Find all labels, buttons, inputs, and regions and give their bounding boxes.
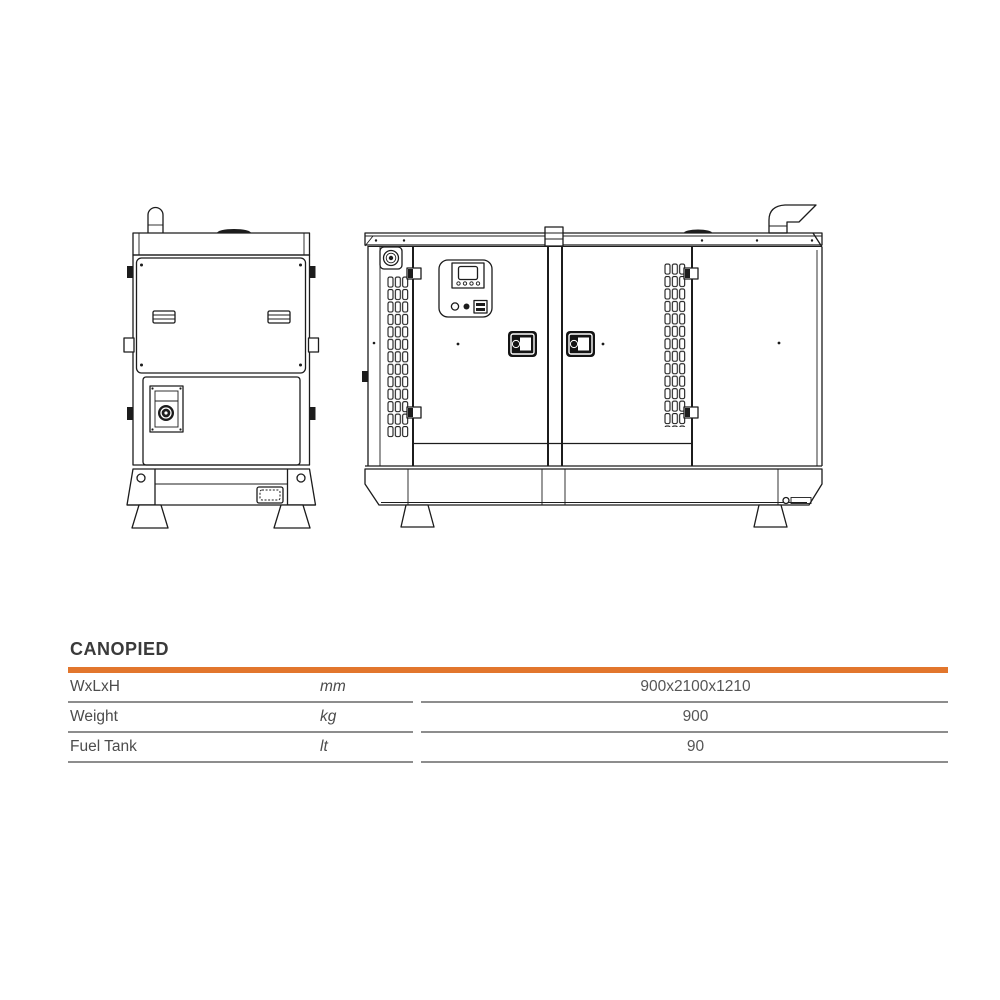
table-row: WxLxH mm 900x2100x1210 xyxy=(68,673,948,703)
table-row: Weight kg 900 xyxy=(68,703,948,733)
side-tab xyxy=(127,407,134,420)
side-tab xyxy=(309,407,316,420)
roof-band xyxy=(365,233,822,247)
generator-front-view-drawing xyxy=(115,195,340,535)
louver-slot-left xyxy=(153,311,175,323)
row-label: Weight xyxy=(68,708,320,726)
emergency-stop-button xyxy=(380,247,402,269)
foot xyxy=(754,505,787,527)
row-unit: mm xyxy=(320,678,346,696)
row-unit: lt xyxy=(320,738,328,756)
lift-bracket xyxy=(309,338,319,352)
table-title: CANOPIED xyxy=(70,640,948,659)
row-value: 90 xyxy=(421,733,948,763)
base-frame xyxy=(127,469,316,505)
exhaust-stub xyxy=(148,208,163,233)
display-screen xyxy=(459,267,478,280)
base-plate xyxy=(257,487,283,503)
door-latch-left xyxy=(508,331,537,357)
lifting-bracket xyxy=(545,227,563,246)
canopy-body xyxy=(133,255,310,465)
foot xyxy=(401,505,434,527)
lower-door xyxy=(143,377,300,465)
panel-button xyxy=(451,303,458,310)
side-tab xyxy=(362,371,368,382)
side-tab xyxy=(127,266,134,278)
row-label: Fuel Tank xyxy=(68,738,320,756)
door-hinges xyxy=(407,268,698,418)
foot xyxy=(132,505,168,528)
vent-grille-right xyxy=(664,263,686,427)
socket-recess xyxy=(150,386,183,432)
row-unit: kg xyxy=(320,708,336,726)
exhaust-pipe xyxy=(769,205,816,233)
vent-grille-left xyxy=(387,276,409,438)
table-row: Fuel Tank lt 90 xyxy=(68,733,948,763)
service-doors xyxy=(413,246,692,466)
control-panel xyxy=(439,260,492,317)
panel-button xyxy=(464,304,470,310)
panel-socket xyxy=(474,301,487,314)
louver-slot-right xyxy=(268,311,290,323)
foot xyxy=(274,505,310,528)
row-label: WxLxH xyxy=(68,678,320,696)
generator-side-view-drawing xyxy=(350,195,830,535)
roof-cap xyxy=(684,230,712,233)
drain-plug xyxy=(783,498,789,504)
side-tab xyxy=(309,266,316,278)
door-latch-right xyxy=(566,331,595,357)
front-view xyxy=(124,208,319,529)
base-skid xyxy=(365,469,822,505)
row-value: 900 xyxy=(421,703,948,733)
roof-band xyxy=(133,233,310,255)
spec-table: CANOPIED WxLxH mm 900x2100x1210 Weight k… xyxy=(68,640,948,763)
row-value: 900x2100x1210 xyxy=(421,673,948,703)
lift-bracket xyxy=(124,338,134,352)
side-view xyxy=(362,205,822,527)
upper-panel xyxy=(137,258,306,373)
